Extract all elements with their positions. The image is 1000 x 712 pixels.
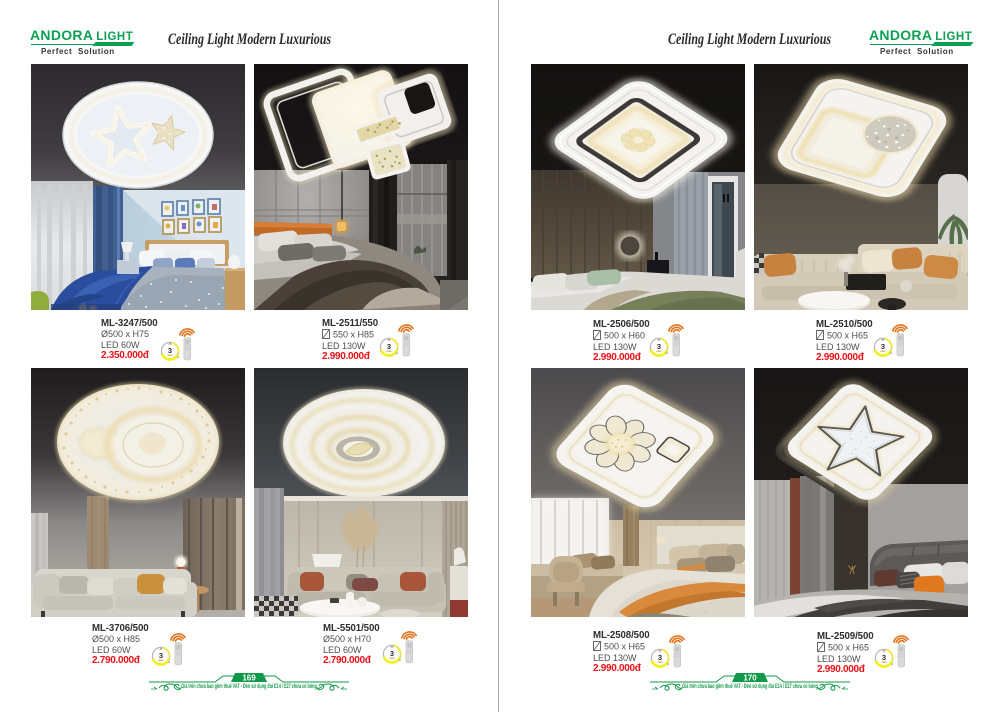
svg-text:169: 169 [242, 673, 256, 682]
svg-text:170: 170 [743, 673, 757, 682]
